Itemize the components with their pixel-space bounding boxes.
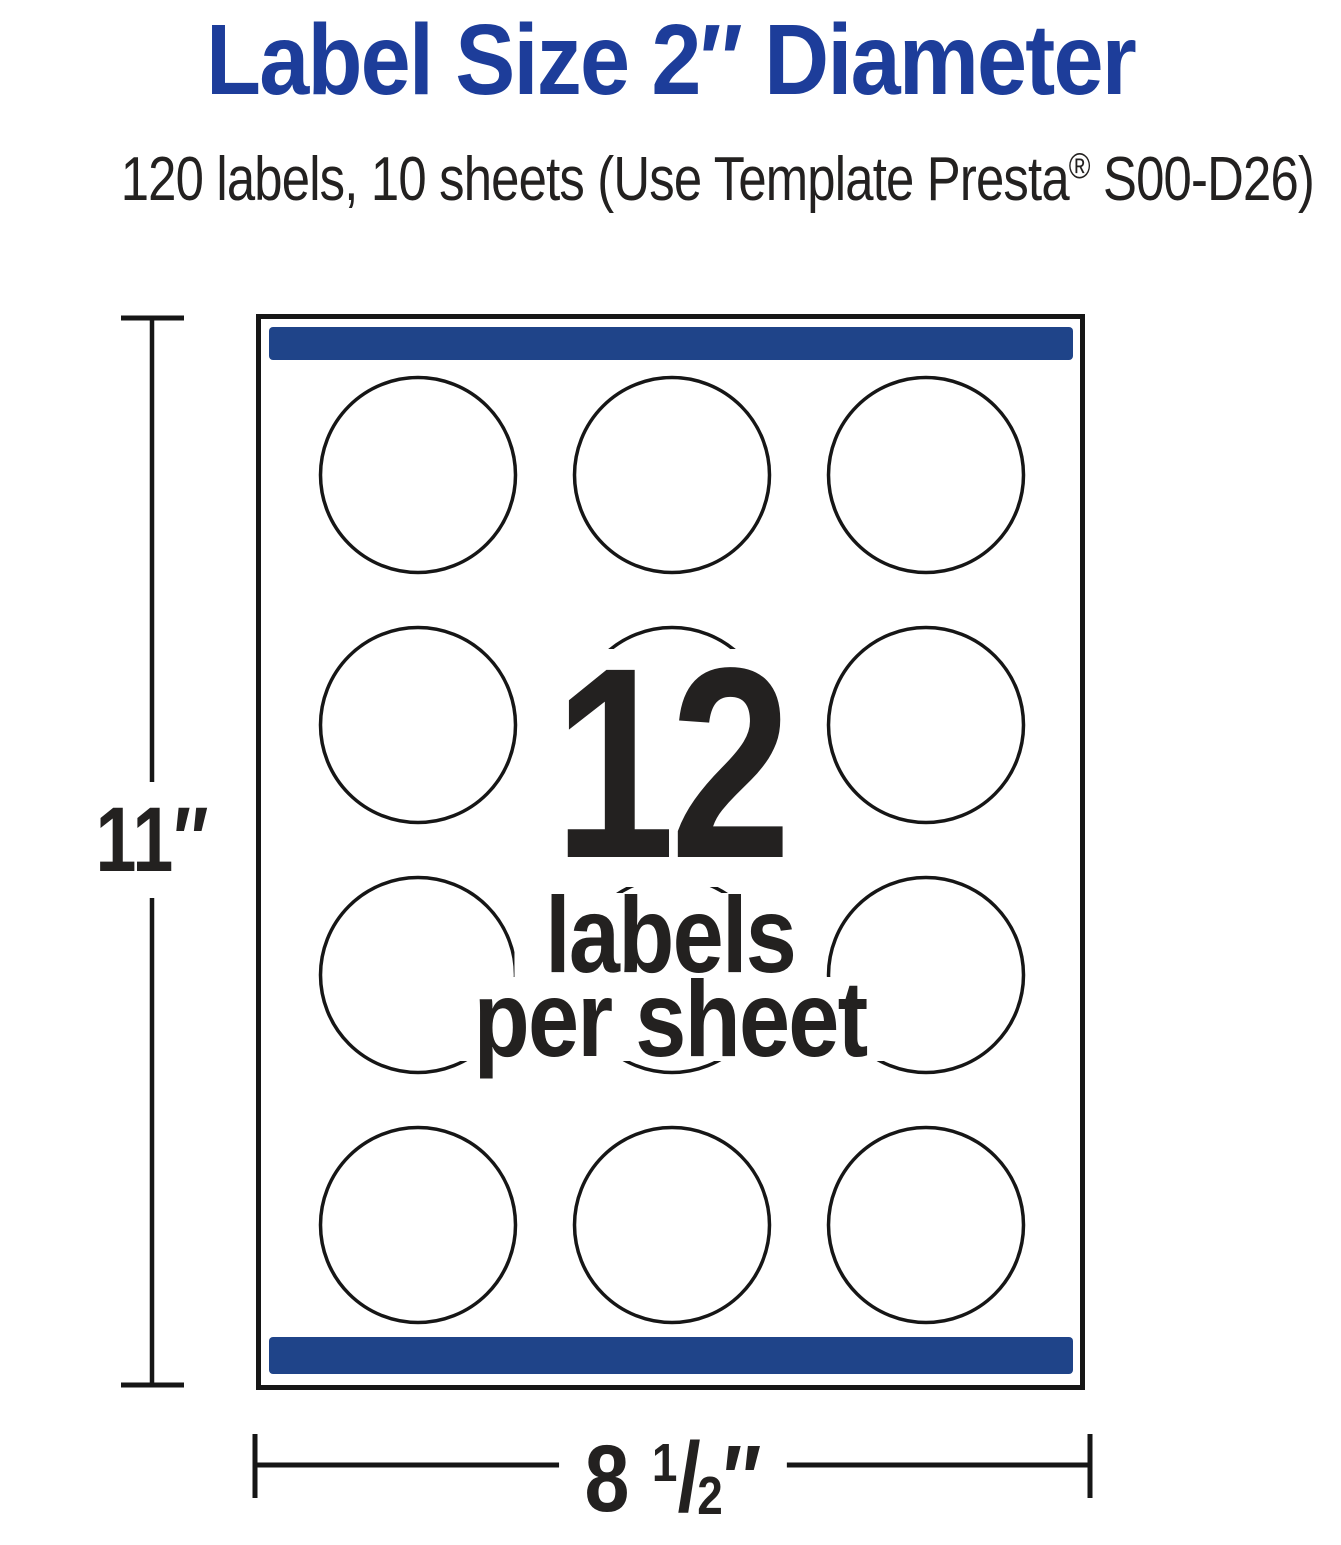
page-subtitle: 120 labels, 10 sheets (Use Template Pres…: [121, 130, 1221, 216]
labels-count-number: 12: [522, 649, 818, 887]
page-title: Label Size 2″ Diameter: [67, 4, 1274, 116]
label-circle: [829, 1128, 1024, 1323]
width-inch-mark: ″: [723, 1426, 762, 1532]
subtitle-text-after: S00-D26): [1090, 145, 1314, 214]
per-sheet-words: per sheet: [443, 977, 897, 1061]
registered-trademark-symbol: ®: [1069, 145, 1090, 186]
sheet-bottom-bar: [269, 1337, 1073, 1374]
label-circle: [321, 378, 516, 573]
width-whole-number: 8: [585, 1426, 630, 1532]
height-dimension-label: 11″: [87, 782, 216, 898]
label-circle: [575, 1128, 770, 1323]
label-circle: [829, 378, 1024, 573]
width-dimension-label: 8 1/2″: [559, 1414, 787, 1545]
product-diagram-page: { "header": { "title": "Label Size 2″ Di…: [0, 4, 1341, 1504]
label-circle: [321, 1128, 516, 1323]
sheet-top-bar: [269, 327, 1073, 360]
subtitle-text-before: 120 labels, 10 sheets (Use Template Pres…: [121, 145, 1069, 214]
width-fraction-denominator: 2: [697, 1466, 723, 1526]
width-fraction-slash: /: [677, 1422, 697, 1532]
label-circle: [575, 378, 770, 573]
width-fraction-numerator: 1: [652, 1433, 678, 1493]
